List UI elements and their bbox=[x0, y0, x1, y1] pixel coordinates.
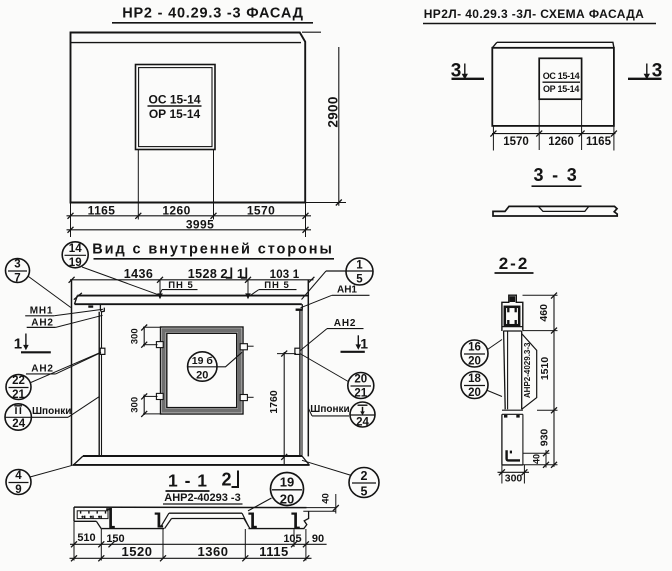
svg-text:40: 40 bbox=[532, 454, 542, 464]
svg-text:20: 20 bbox=[468, 387, 481, 399]
svg-text:АН2: АН2 bbox=[31, 364, 53, 375]
svg-text:2-2: 2-2 bbox=[499, 254, 530, 273]
svg-text:3: 3 bbox=[14, 259, 20, 271]
svg-text:20: 20 bbox=[354, 374, 367, 386]
svg-text:20: 20 bbox=[196, 370, 208, 382]
svg-text:ОС 15-14: ОС 15-14 bbox=[543, 71, 580, 81]
svg-text:1510: 1510 bbox=[539, 357, 551, 381]
svg-text:1165: 1165 bbox=[88, 204, 116, 218]
svg-text:24: 24 bbox=[12, 418, 25, 430]
svg-text:9: 9 bbox=[15, 484, 21, 496]
svg-text:1520: 1520 bbox=[122, 544, 153, 559]
svg-text:1115: 1115 bbox=[259, 544, 289, 559]
svg-text:1260: 1260 bbox=[162, 204, 190, 218]
svg-text:АН2: АН2 bbox=[334, 318, 356, 329]
svg-text:1570: 1570 bbox=[247, 204, 275, 218]
svg-text:21: 21 bbox=[12, 389, 25, 401]
svg-text:ОР 15-14: ОР 15-14 bbox=[149, 107, 201, 121]
svg-text:1570: 1570 bbox=[503, 136, 529, 148]
svg-text:1528: 1528 bbox=[188, 267, 217, 281]
svg-text:2: 2 bbox=[361, 469, 368, 483]
svg-text:1760: 1760 bbox=[268, 390, 280, 414]
svg-text:21: 21 bbox=[354, 388, 367, 400]
svg-text:460: 460 bbox=[538, 304, 550, 322]
svg-text:1: 1 bbox=[356, 260, 363, 272]
svg-text:3 - 3: 3 - 3 bbox=[533, 165, 578, 185]
svg-text:18: 18 bbox=[468, 373, 481, 385]
svg-text:2: 2 bbox=[221, 470, 231, 490]
svg-text:20: 20 bbox=[280, 492, 294, 507]
svg-text:19 б: 19 б bbox=[192, 355, 214, 367]
svg-text:24: 24 bbox=[356, 417, 369, 429]
svg-text:7: 7 bbox=[14, 273, 20, 285]
svg-text:Шпонки: Шпонки bbox=[310, 404, 349, 415]
svg-text:20: 20 bbox=[468, 356, 481, 368]
svg-text:АНР2-40293 -3: АНР2-40293 -3 bbox=[164, 492, 240, 504]
svg-text:ОР 15-14: ОР 15-14 bbox=[543, 84, 579, 94]
svg-text:22: 22 bbox=[12, 375, 25, 387]
svg-text:16: 16 bbox=[468, 342, 481, 354]
svg-text:1436: 1436 bbox=[124, 267, 153, 281]
svg-text:930: 930 bbox=[539, 429, 551, 447]
svg-text:5: 5 bbox=[356, 274, 363, 286]
svg-text:Шпонки: Шпонки bbox=[32, 406, 71, 417]
svg-text:Вид с внутренней стороны: Вид с внутренней стороны bbox=[92, 242, 333, 258]
svg-text:МН1: МН1 bbox=[30, 306, 54, 317]
svg-text:НР2Л- 40.29.3 -3Л- СХЕМА ФА: НР2Л- 40.29.3 -3Л- СХЕМА ФАСАДА bbox=[424, 7, 645, 21]
svg-text:1260: 1260 bbox=[548, 136, 574, 148]
svg-text:1: 1 bbox=[14, 336, 22, 353]
svg-text:300: 300 bbox=[505, 473, 523, 485]
svg-text:НР2 - 40.29.3 -3 ФАСАД: НР2 - 40.29.3 -3 ФАСАД bbox=[122, 6, 304, 22]
svg-text:4: 4 bbox=[15, 470, 22, 482]
svg-text:АН1: АН1 bbox=[337, 285, 357, 296]
svg-text:103 1: 103 1 bbox=[270, 269, 300, 281]
svg-text:14: 14 bbox=[69, 243, 82, 255]
svg-text:300: 300 bbox=[129, 397, 140, 413]
svg-text:1: 1 bbox=[360, 336, 368, 352]
svg-text:1 - 1: 1 - 1 bbox=[168, 471, 208, 491]
svg-text:40: 40 bbox=[321, 493, 332, 504]
svg-text:5: 5 bbox=[361, 485, 368, 499]
svg-text:90: 90 bbox=[312, 533, 324, 545]
svg-text:510: 510 bbox=[77, 532, 95, 544]
svg-text:АНР2-4029.3-3: АНР2-4029.3-3 bbox=[523, 342, 532, 398]
svg-text:300: 300 bbox=[129, 328, 140, 344]
svg-text:1165: 1165 bbox=[586, 136, 612, 148]
svg-text:3995: 3995 bbox=[186, 218, 214, 232]
svg-text:2900: 2900 bbox=[326, 96, 341, 127]
svg-text:1360: 1360 bbox=[198, 544, 229, 559]
svg-text:19: 19 bbox=[69, 257, 82, 269]
svg-text:19: 19 bbox=[280, 475, 294, 490]
svg-text:ОС 15-14: ОС 15-14 bbox=[148, 93, 200, 107]
